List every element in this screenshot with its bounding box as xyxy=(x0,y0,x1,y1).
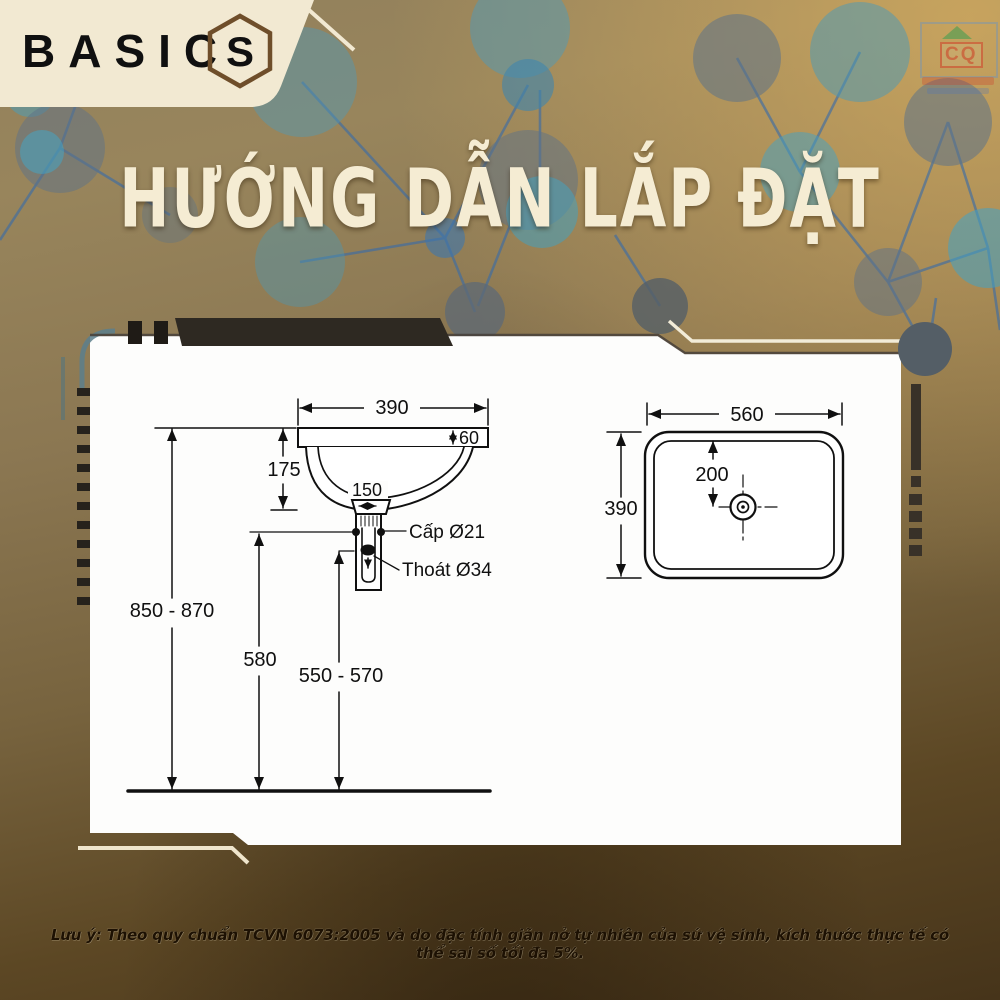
badge-accent-line xyxy=(300,2,354,50)
brand-badge: BASIC S xyxy=(0,0,380,125)
installation-guide-poster: HƯỚNG DẪN LẮP ĐẶT xyxy=(0,0,1000,1000)
dim-drain-height: 550 - 570 xyxy=(299,665,384,687)
watermark-roof-icon xyxy=(942,26,972,39)
supply-point-left xyxy=(352,528,360,536)
tolerance-note: Lưu ý: Theo quy chuẩn TCVN 6073:2005 và … xyxy=(50,926,950,962)
technical-drawing: 390 60 175 150 Cấp xyxy=(0,0,1000,1000)
dim-bowl-depth: 175 xyxy=(267,459,300,481)
watermark-letters: CQ xyxy=(940,42,983,68)
drain-hole-center xyxy=(741,505,745,509)
dim-rim-thickness: 60 xyxy=(459,428,479,448)
dim-basin-depth: 390 xyxy=(604,498,637,520)
watermark-red-bar xyxy=(922,77,994,85)
supply-point-right xyxy=(377,528,385,536)
dim-rim-width: 390 xyxy=(375,397,408,419)
label-drain: Thoát Ø34 xyxy=(402,560,492,581)
brand-name: BASIC xyxy=(22,25,230,77)
drain-flange xyxy=(352,500,390,514)
side-view-drawing: 390 60 175 150 Cấp xyxy=(128,397,492,791)
watermark-logo: CQ xyxy=(918,14,1000,94)
drain-outlet-dot xyxy=(361,545,376,556)
dim-rim-height: 850 - 870 xyxy=(130,600,215,622)
dim-supply-height: 580 xyxy=(243,649,276,671)
label-supply: Cấp Ø21 xyxy=(409,522,485,543)
dim-basin-width: 560 xyxy=(730,404,763,426)
watermark-blue-bar xyxy=(927,88,989,94)
top-view-drawing: 560 390 200 xyxy=(604,403,843,578)
dim-drain-span: 150 xyxy=(352,480,382,500)
dim-hole-offset: 200 xyxy=(695,464,728,486)
brand-logo-letter: S xyxy=(226,28,254,75)
